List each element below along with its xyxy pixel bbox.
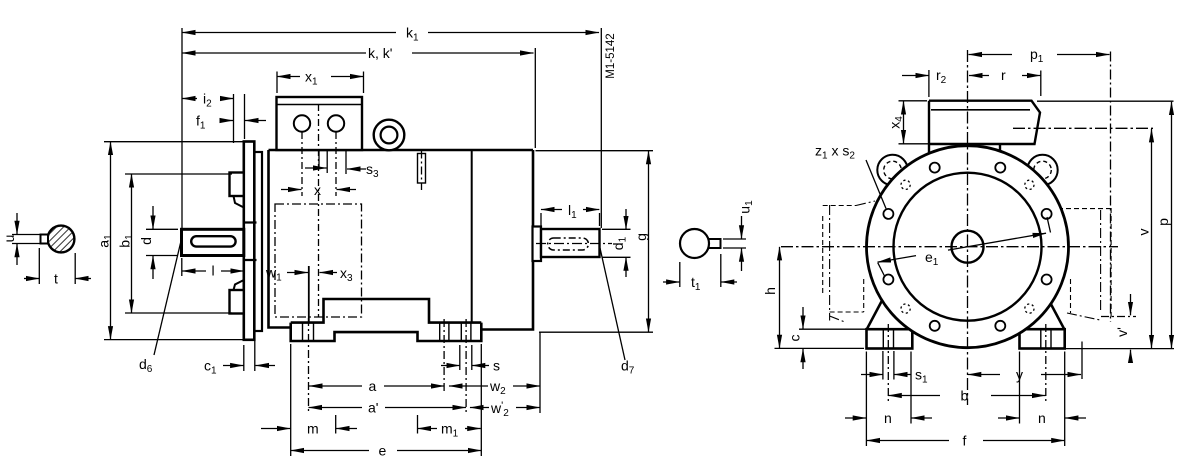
svg-text:f: f [963,433,967,449]
svg-text:M1-5142: M1-5142 [605,33,617,78]
svg-text:y: y [1016,367,1023,383]
svg-text:e: e [379,443,387,459]
svg-text:t1: t1 [691,274,701,293]
svg-text:z1 x s2: z1 x s2 [815,143,855,162]
svg-text:n: n [1038,410,1046,426]
svg-text:d6: d6 [139,356,153,375]
svg-text:x4: x4 [887,116,905,129]
svg-text:a1: a1 [96,234,114,248]
svg-text:v: v [1136,229,1152,236]
svg-text:l1: l1 [568,202,577,221]
svg-text:d7: d7 [621,358,635,377]
svg-text:t: t [54,271,58,287]
svg-text:s: s [493,358,500,374]
svg-text:d1: d1 [610,236,628,250]
svg-text:k1: k1 [406,25,419,44]
svg-text:h: h [762,287,778,295]
svg-text:c: c [787,335,803,342]
svg-text:w2: w2 [489,378,506,397]
svg-text:r2: r2 [936,67,947,86]
svg-text:x: x [314,182,321,198]
svg-text:v': v' [1114,327,1130,337]
svg-text:g: g [633,233,649,241]
svg-text:a: a [369,378,377,394]
svg-text:u: u [1,235,17,243]
svg-text:s3: s3 [366,161,379,180]
svg-text:b: b [961,388,969,404]
svg-text:n: n [884,410,892,426]
svg-text:r: r [1001,67,1006,83]
svg-text:u1: u1 [737,200,755,214]
svg-text:d: d [138,237,154,245]
svg-text:x3: x3 [340,265,353,284]
svg-text:m: m [307,421,319,437]
svg-text:w'2: w'2 [490,400,509,419]
svg-text:c1: c1 [204,358,217,377]
svg-text:f1: f1 [196,113,206,132]
svg-text:b1: b1 [117,234,135,248]
svg-text:p: p [1155,218,1171,226]
svg-text:i2: i2 [203,91,212,110]
svg-text:p1: p1 [1030,46,1044,65]
svg-text:s1: s1 [915,367,928,386]
svg-text:k, k': k, k' [368,45,392,61]
svg-text:l: l [212,263,215,279]
svg-text:a': a' [368,400,378,416]
svg-text:m1: m1 [441,421,459,440]
svg-text:x1: x1 [305,69,318,88]
